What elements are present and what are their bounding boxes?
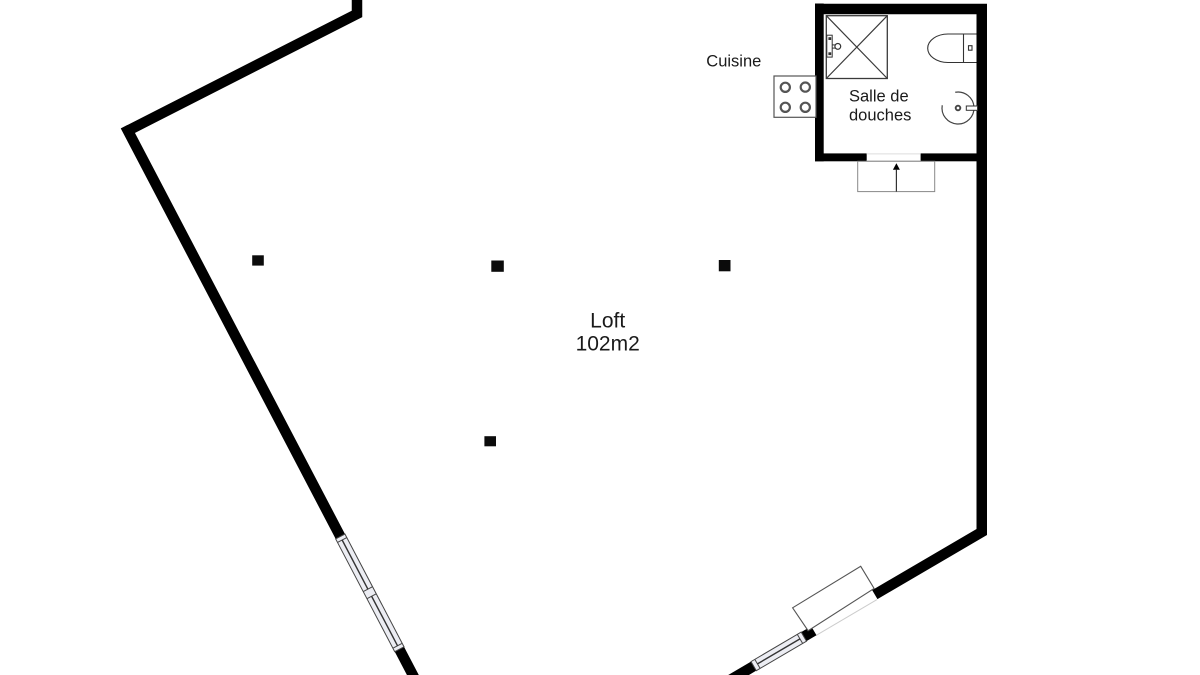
- svg-text:Loft: Loft: [590, 310, 625, 333]
- svg-text:102m2: 102m2: [576, 332, 640, 355]
- svg-text:douches: douches: [849, 107, 911, 125]
- svg-text:Salle de: Salle de: [849, 88, 909, 106]
- svg-text:Cuisine: Cuisine: [706, 52, 761, 70]
